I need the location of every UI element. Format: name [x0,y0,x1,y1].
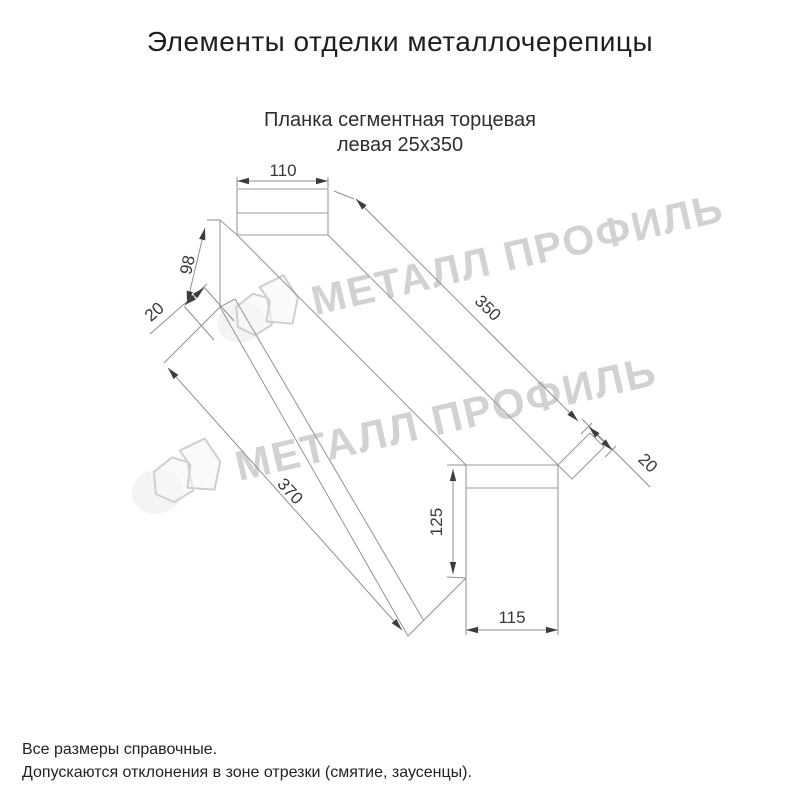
dim-115: 115 [466,608,558,635]
end-cap [558,433,604,479]
technical-drawing: МЕТАЛЛ ПРОФИЛЬ МЕТАЛЛ ПРОФИЛЬ [0,0,800,800]
dim-20-right: 20 [581,419,661,487]
watermark-logo-icon [229,273,304,338]
dim-125-label: 125 [427,508,446,536]
dim-98: 98 [176,228,205,303]
watermark-logo-icon [146,436,227,505]
footer-notes: Все размеры справочные. Допускаются откл… [22,738,762,784]
watermark-middle: МЕТАЛЛ ПРОФИЛЬ [123,336,663,519]
page: Элементы отделки металлочерепицы Планка … [0,0,800,800]
flange-top-face [237,189,328,235]
dim-110: 110 [237,161,328,188]
watermark-text-top: МЕТАЛЛ ПРОФИЛЬ [307,184,728,324]
footer-note-2: Допускаются отклонения в зоне отрезки (с… [22,761,762,784]
watermark-top: МЕТАЛЛ ПРОФИЛЬ [209,176,728,348]
watermark-text-middle: МЕТАЛЛ ПРОФИЛЬ [231,347,662,490]
dim-20-left-label: 20 [141,298,168,325]
dim-125: 125 [427,465,466,578]
footer-note-1: Все размеры справочные. [22,738,762,761]
left-corner-edge [220,220,237,235]
dim-98-label: 98 [176,254,199,276]
dim-115-label: 115 [498,608,525,627]
side-profile [466,465,558,628]
dim-20-right-label: 20 [634,450,661,477]
dim-110-label: 110 [269,161,296,180]
band-bottom-end-edge [408,578,466,636]
